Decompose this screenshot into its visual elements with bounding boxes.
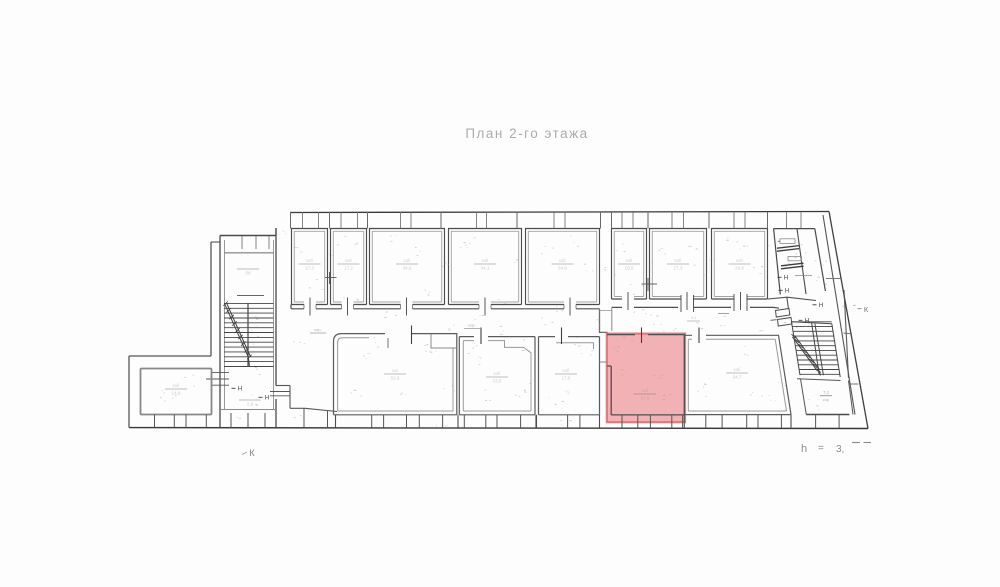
svg-text:5,1: 5,1 (691, 315, 697, 320)
svg-text:кор.: кор. (314, 327, 321, 332)
svg-text:кор.: кор. (468, 323, 475, 328)
svg-text:34,7: 34,7 (733, 375, 742, 380)
svg-text:ЛК: ЛК (245, 271, 251, 276)
svg-text:каб: каб (482, 258, 489, 263)
svg-text:17,3: 17,3 (305, 266, 314, 271)
svg-text:каб: каб (734, 367, 741, 372)
svg-text:Н: Н (265, 395, 269, 402)
svg-text:Н: Н (819, 302, 823, 309)
svg-text:17,2: 17,2 (344, 266, 353, 271)
svg-text:34,8: 34,8 (558, 266, 567, 271)
svg-text:=: = (818, 443, 824, 454)
svg-text:17,9: 17,9 (641, 396, 650, 401)
svg-text:Н: Н (238, 386, 242, 393)
svg-text:каб: каб (642, 388, 649, 393)
svg-text:каб: каб (345, 258, 352, 263)
svg-text:каб: каб (173, 383, 180, 388)
svg-text:каб: каб (675, 258, 682, 263)
svg-text:каб: каб (626, 258, 633, 263)
svg-text:16,9: 16,9 (625, 266, 634, 271)
svg-text:К: К (249, 448, 255, 458)
svg-text:2,9: 2,9 (247, 402, 254, 407)
svg-text:7,2: 7,2 (823, 390, 829, 395)
svg-text:Н: Н (784, 275, 788, 282)
svg-text:14,9: 14,9 (172, 391, 181, 396)
svg-text:52,6: 52,6 (391, 376, 400, 381)
svg-text:26,8: 26,8 (735, 266, 744, 271)
svg-text:каб: каб (736, 258, 743, 263)
svg-text:34,1: 34,1 (481, 266, 490, 271)
svg-text:К: К (864, 305, 869, 314)
svg-text:34,6: 34,6 (403, 266, 412, 271)
svg-text:каб: каб (559, 258, 566, 263)
svg-text:каб: каб (306, 258, 313, 263)
svg-text:h: h (801, 443, 807, 455)
svg-text:каб: каб (404, 258, 411, 263)
svg-text:27,3: 27,3 (674, 266, 683, 271)
svg-text:План 2-го этажа: План 2-го этажа (465, 126, 588, 141)
svg-text:Н: Н (805, 318, 809, 325)
svg-text:кор: кор (823, 397, 830, 402)
svg-text:33,9: 33,9 (493, 379, 502, 384)
svg-text:зал: зал (392, 368, 399, 373)
svg-text:17,6: 17,6 (562, 376, 571, 381)
svg-text:каб: каб (494, 371, 501, 376)
svg-text:Н: Н (785, 288, 789, 295)
svg-text:каб: каб (563, 368, 570, 373)
svg-text:3,: 3, (836, 444, 844, 455)
